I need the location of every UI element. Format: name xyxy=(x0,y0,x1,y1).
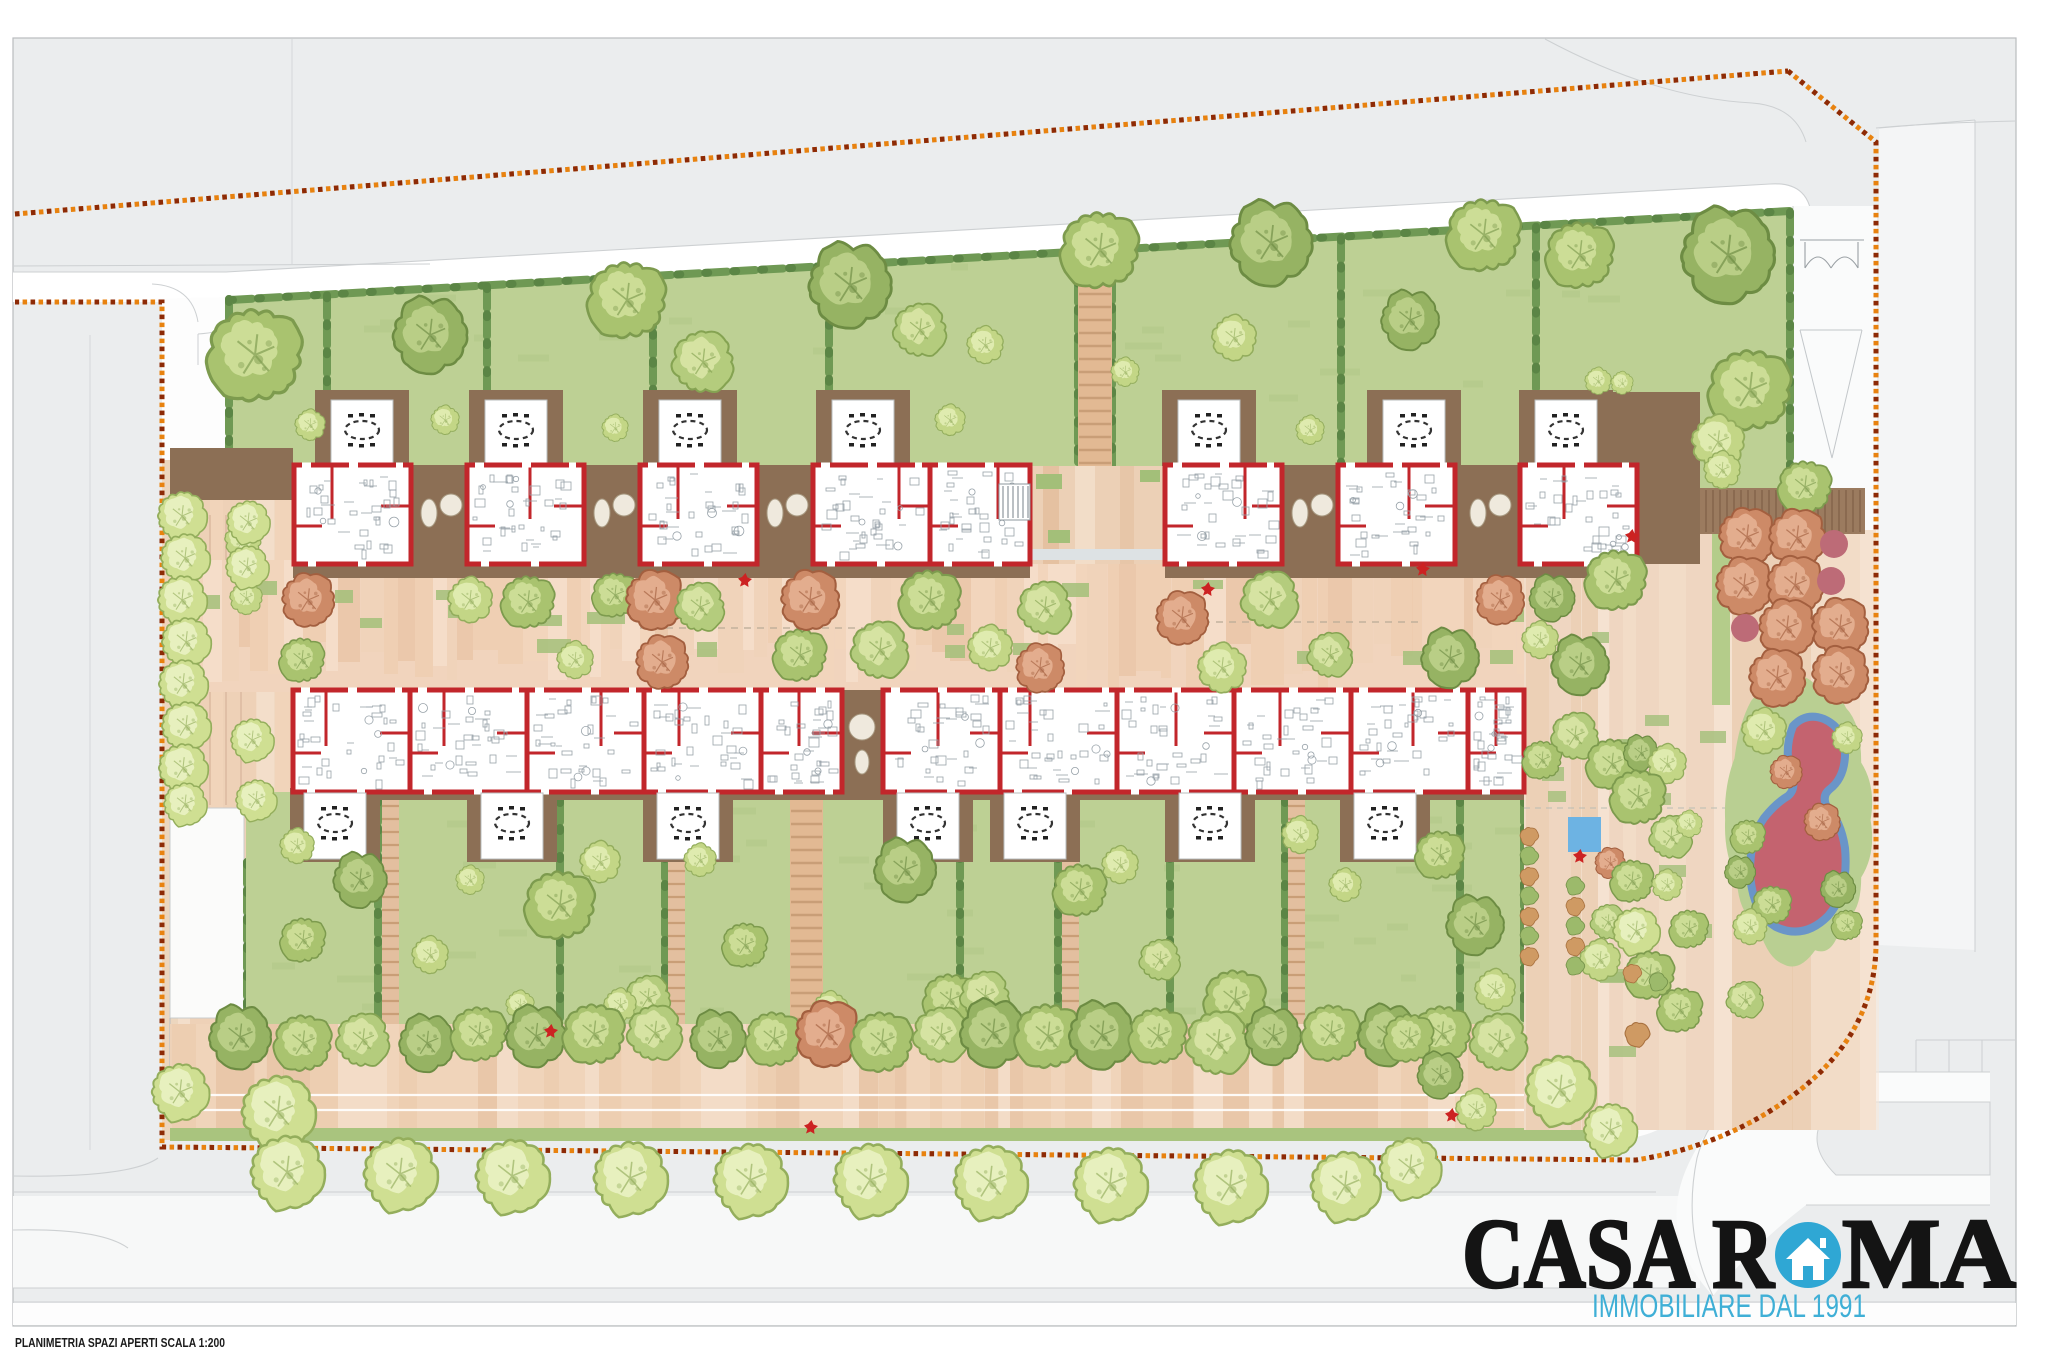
svg-text:PLANIMETRIA SPAZI APERTI SCALA: PLANIMETRIA SPAZI APERTI SCALA 1:200 xyxy=(15,1335,225,1350)
svg-text:MA: MA xyxy=(1842,1198,2016,1309)
svg-text:IMMOBILIARE DAL 1991: IMMOBILIARE DAL 1991 xyxy=(1592,1288,1866,1324)
